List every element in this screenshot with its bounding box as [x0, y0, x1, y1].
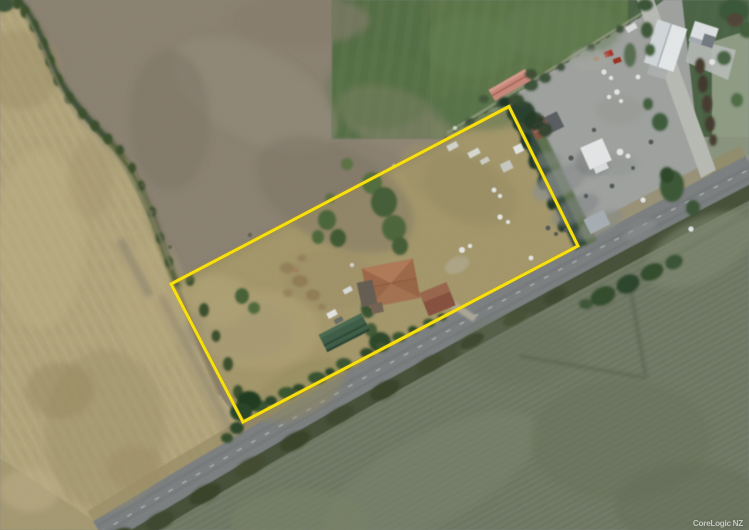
svg-text:CoreLogic NZ: CoreLogic NZ [693, 519, 743, 528]
